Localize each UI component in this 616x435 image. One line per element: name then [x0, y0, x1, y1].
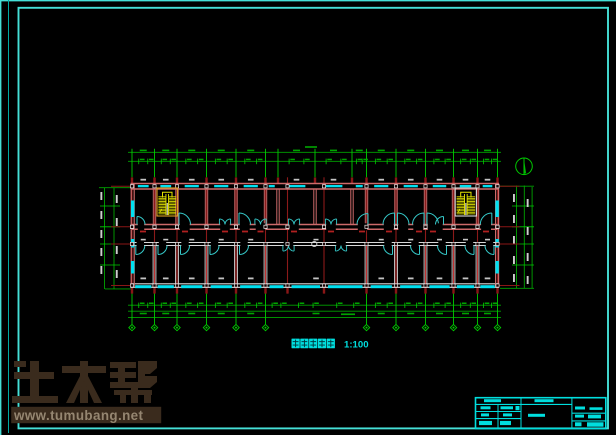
- svg-text:www.tumubang.net: www.tumubang.net: [13, 408, 144, 423]
- svg-text:1:100: 1:100: [344, 340, 369, 351]
